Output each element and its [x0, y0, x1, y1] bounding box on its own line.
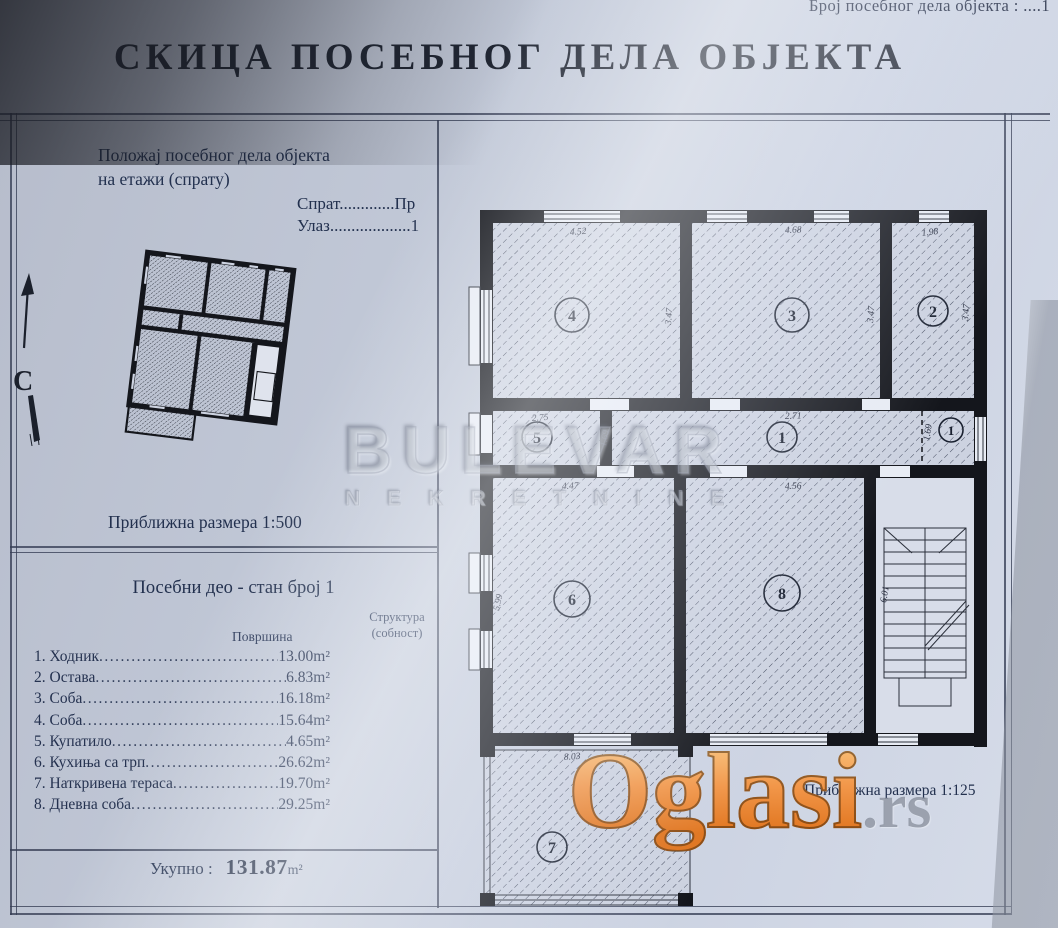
- total-value: 131.87: [225, 855, 287, 879]
- dimension-label: 2.75: [532, 413, 550, 424]
- room-list-row: 5. Купатило4.65m²: [34, 733, 330, 754]
- dot-leader: [145, 754, 278, 772]
- left-panel-divider-1: [10, 546, 437, 548]
- page-title: СКИЦА ПОСЕБНОГ ДЕЛА ОБЈЕКТА: [0, 36, 1020, 79]
- position-heading-line1: Положај посебног дела објекта: [98, 144, 330, 168]
- total-line: Укупно : 131.87m²: [150, 855, 303, 880]
- room-row-area: 4.65m²: [286, 733, 330, 751]
- room-row-name: Дневна соба: [50, 796, 132, 814]
- dot-leader: [82, 690, 278, 708]
- north-arrow-head-icon: [21, 273, 34, 296]
- room-row-label: 1.: [34, 648, 46, 666]
- room-number: 8: [778, 586, 786, 603]
- room-row-area: 19.70m²: [278, 775, 330, 793]
- room-row-name: Наткривена тераса: [50, 775, 173, 793]
- unit-section-heading: Посебни део - стан број 1: [30, 578, 437, 599]
- dimension-label: 4.47: [562, 481, 580, 492]
- room-number: 5: [533, 430, 541, 447]
- room-row-label: 4.: [34, 712, 46, 730]
- room-row-area: 13.00m²: [278, 648, 330, 666]
- photographed-document-page: Број посебног дела објекта : ....1 СКИЦА…: [0, 0, 1058, 928]
- room-row-name: Кухиња са трп: [50, 754, 146, 772]
- north-letter: С: [13, 366, 33, 397]
- room-row-label: 6.: [34, 754, 46, 772]
- dot-leader: [131, 796, 278, 814]
- dimension-label: 2.71: [785, 411, 802, 422]
- dot-leader: [82, 712, 278, 730]
- room-list-row: 6. Кухиња са трп26.62m²: [34, 754, 330, 775]
- mini-location-plan: [122, 249, 305, 453]
- room-list-row: 3. Соба16.18m²: [34, 690, 330, 711]
- entrance-label: Улаз...................1: [297, 215, 419, 237]
- room-number: 6: [568, 592, 576, 609]
- dimension-label: 1.98: [921, 227, 939, 239]
- room-row-area: 6.83m²: [286, 669, 330, 687]
- north-needle-line2: [30, 434, 32, 446]
- dot-leader: [173, 775, 278, 793]
- dot-leader: [95, 669, 286, 687]
- room-list-row: 2. Остава6.83m²: [34, 669, 330, 690]
- dimension-label: 3.47: [664, 307, 676, 327]
- room-number: 4: [568, 308, 576, 325]
- column-header-structure: Структура (собност): [342, 610, 452, 641]
- room-list: 1. Ходник13.00m²2. Остава6.83m²3. Соба16…: [34, 648, 330, 818]
- room-row-name: Соба: [50, 712, 83, 730]
- total-divider: [10, 849, 437, 851]
- dimension-label: 8.03: [564, 752, 582, 763]
- floor-label: Спрат.............Пр: [297, 193, 419, 215]
- dimension-label: 4.68: [785, 225, 802, 236]
- room-row-label: 7.: [34, 775, 46, 793]
- left-panel-divider-2: [10, 552, 437, 553]
- frame-top-line-1: [0, 113, 1050, 115]
- mini-plan-walls: [126, 253, 294, 450]
- room-list-row: 4. Соба15.64m²: [34, 712, 330, 733]
- room-row-area: 29.25m²: [278, 796, 330, 814]
- frame-left-line-1: [10, 113, 12, 915]
- position-heading-line2: на етажи (спрату): [98, 168, 330, 192]
- mini-plan-scale-label: Приближна размера 1:500: [108, 512, 438, 533]
- room-list-row: 7. Наткривена тераса19.70m²: [34, 775, 330, 796]
- floor-plan: 4 3 2 5 1 1 6 8 7 4.52 3.47 4.68 3.47 1.…: [452, 203, 1012, 921]
- room-row-area: 15.64m²: [278, 712, 330, 730]
- column-header-structure-line2: (собност): [342, 626, 452, 642]
- dot-leader: [99, 648, 278, 666]
- room-row-name: Соба: [50, 690, 83, 708]
- room-number: 1: [778, 430, 786, 447]
- room-number: 1: [948, 423, 955, 438]
- room-row-label: 2.: [34, 669, 46, 687]
- floor-entrance-block: Спрат.............Пр Улаз...............…: [297, 193, 419, 238]
- room-row-area: 26.62m²: [278, 754, 330, 772]
- frame-top-line-2: [0, 120, 1050, 121]
- room-row-name: Ходник: [50, 648, 100, 666]
- room-row-label: 5.: [34, 733, 46, 751]
- frame-left-line-2: [16, 113, 17, 915]
- dot-leader: [112, 733, 286, 751]
- room-number: 2: [929, 304, 937, 321]
- room-row-name: Купатило: [50, 733, 112, 751]
- room-row-label: 3.: [34, 690, 46, 708]
- total-unit: m²: [288, 863, 303, 878]
- dimension-label: 3.47: [961, 303, 973, 323]
- column-header-area: Површина: [232, 629, 292, 645]
- room-row-area: 16.18m²: [278, 690, 330, 708]
- photo-shadow-top-left: [0, 0, 820, 165]
- room-list-row: 8. Дневна соба29.25m²: [34, 796, 330, 817]
- room-list-row: 1. Ходник13.00m²: [34, 648, 330, 669]
- total-label: Укупно :: [150, 859, 213, 878]
- dimension-label: 4.52: [570, 227, 588, 238]
- room-number: 3: [788, 308, 796, 325]
- north-arrow: С: [2, 268, 48, 446]
- column-header-structure-line1: Структура: [342, 610, 452, 626]
- room-row-label: 8.: [34, 796, 46, 814]
- document-number-line: Број посебног дела објекта : ....1: [809, 0, 1050, 16]
- position-heading: Положај посебног дела објекта на етажи (…: [98, 144, 330, 191]
- room-row-name: Остава: [50, 669, 96, 687]
- plan-scale-label: Приближна размера 1:125: [804, 782, 976, 799]
- dimension-label: 4.56: [785, 481, 802, 492]
- room-number: 7: [548, 840, 556, 857]
- dimension-label: 3.47: [866, 305, 878, 325]
